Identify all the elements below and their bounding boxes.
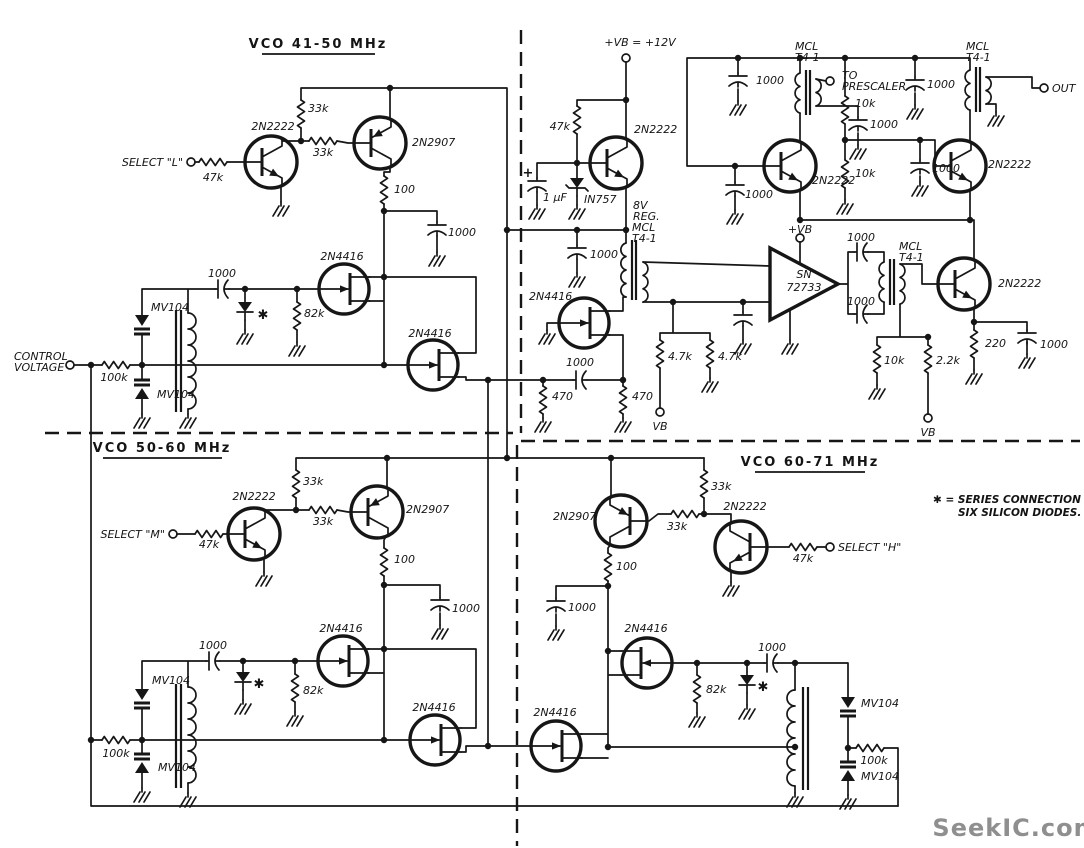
star-vco2: ✱ (254, 677, 265, 692)
q-2n4416-a-vco1: 2N4416 (320, 250, 363, 263)
r-10k-bias: 10k (884, 354, 905, 367)
note-line2: SIX SILICON DIODES. (958, 507, 1081, 519)
q-2n4416-a-vco2: 2N4416 (319, 622, 362, 635)
star-vco1: ✱ (258, 308, 269, 323)
r-100k-vco1: 100k (100, 371, 128, 384)
r-33k-a-vco1: 33k (308, 102, 329, 115)
q-2n2907-vco3: 2N2907 (553, 510, 596, 523)
q-2n4416-b-vco3: 2N4416 (533, 706, 576, 719)
opamp-line1: SN (796, 268, 811, 281)
to-prescaler-line2: PRESCALER (842, 80, 906, 93)
r-4p7k-a: 4.7k (668, 350, 692, 363)
t4-out2-line2: T4-1 (899, 251, 924, 264)
c-1000-b-vco1: 1000 (208, 267, 236, 280)
c-1000-a-vco2: 1000 (452, 602, 480, 615)
q-2n4416-b-vco2: 2N4416 (412, 701, 455, 714)
q-2n2907-vco1: 2N2907 (412, 136, 455, 149)
q-2n2222-vco3: 2N2222 (723, 500, 766, 513)
c-1uf-label: 1 μF (543, 191, 567, 204)
r-10k-a: 10k (855, 97, 876, 110)
c-1000-fb-top: 1000 (847, 231, 875, 244)
opamp-line2: 72733 (787, 281, 822, 294)
d-1n757: IN757 (584, 193, 616, 206)
c-1000-couple: 1000 (566, 356, 594, 369)
q-2n2222-vco1: 2N2222 (251, 120, 294, 133)
vco2-title: VCO 50-60 MHz (93, 441, 232, 456)
r-33k-b-vco3: 33k (667, 520, 688, 533)
r-470-b: 470 (632, 390, 653, 403)
r-82k-vco1: 82k (304, 307, 325, 320)
r-82k-vco2: 82k (303, 684, 324, 697)
q-2n2222-buf1: 2N2222 (812, 174, 855, 187)
select-h-label: SELECT "H" (838, 541, 901, 554)
q-2n2222-buf2: 2N2222 (988, 158, 1031, 171)
d-mv104-a-vco2: MV104 (152, 674, 190, 687)
r-100k-vco2: 100k (102, 747, 130, 760)
watermark: SeekIC.com (932, 814, 1084, 842)
c-1000-b-vco3: 1000 (758, 641, 786, 654)
r-10k-b: 10k (855, 167, 876, 180)
c-1000-out: 1000 (1040, 338, 1068, 351)
d-mv104-a-vco3: MV104 (861, 697, 899, 710)
r-33k-b-vco2: 33k (313, 515, 334, 528)
r-100-vco3: 100 (616, 560, 637, 573)
supply-label: +VB = +12V (604, 36, 677, 49)
r-33k-a-vco2: 33k (303, 475, 324, 488)
r-47k-vco1: 47k (203, 171, 224, 184)
c-1000-rail: 1000 (756, 74, 784, 87)
r-220: 220 (985, 337, 1006, 350)
r-82k-vco3: 82k (706, 683, 727, 696)
star-vco3: ✱ (758, 680, 769, 695)
q-2n4416-b-vco1: 2N4416 (408, 327, 451, 340)
q-2n2222-reg: 2N2222 (634, 123, 677, 136)
c-1000-a-vco3: 1000 (568, 601, 596, 614)
r-47k-vco3: 47k (793, 552, 814, 565)
control-voltage-line2: VOLTAGE (14, 361, 64, 374)
c-1000-reg: 1000 (590, 248, 618, 261)
c-1000-presc: 1000 (870, 118, 898, 131)
r-47k-reg: 47k (550, 120, 571, 133)
r-100k-vco3: 100k (860, 754, 888, 767)
select-m-label: SELECT "M" (100, 528, 165, 541)
vb-label-2: VB (920, 426, 935, 439)
c-1000-a-vco1: 1000 (448, 226, 476, 239)
r-33k-b-vco1: 33k (313, 146, 334, 159)
q-2n4416-a-vco3: 2N4416 (624, 622, 667, 635)
d-mv104-b-vco2: MV104 (158, 761, 196, 774)
vco1-title: VCO 41-50 MHz (249, 37, 388, 52)
vb-label-1: VB (652, 420, 667, 433)
vco3-title: VCO 60-71 MHz (741, 455, 880, 470)
select-l-label: SELECT "L" (122, 156, 183, 169)
r-47k-vco2: 47k (199, 538, 220, 551)
c-1000-buf2: 1000 (932, 162, 960, 175)
vco-schematic: VCO 41-50 MHzVCO 50-60 MHzVCO 60-71 MHz✱… (0, 0, 1084, 848)
q-2n2222-vco2: 2N2222 (232, 490, 275, 503)
t4-out-line2: T4-1 (966, 51, 991, 64)
r-2p2k: 2.2k (936, 354, 960, 367)
r-100-vco2: 100 (394, 553, 415, 566)
schematic-page: VCO 41-50 MHzVCO 50-60 MHzVCO 60-71 MHz✱… (0, 0, 1084, 848)
d-mv104-a-vco1: MV104 (151, 301, 189, 314)
c-1000-top: 1000 (927, 78, 955, 91)
r-4p7k-b: 4.7k (718, 350, 742, 363)
d-mv104-b-vco3: MV104 (861, 770, 899, 783)
background (0, 0, 1084, 848)
out-label: OUT (1052, 82, 1077, 95)
c-1000-buf1: 1000 (745, 188, 773, 201)
r-470-a: 470 (552, 390, 573, 403)
plus-1uf: + (523, 166, 534, 181)
q-2n2222-out: 2N2222 (998, 277, 1041, 290)
t4-mid-line2: T4-1 (632, 232, 657, 245)
q-2n2907-vco2: 2N2907 (406, 503, 449, 516)
r-100-vco1: 100 (394, 183, 415, 196)
r-33k-a-vco3: 33k (711, 480, 732, 493)
opamp-vb-label: +VB (788, 223, 812, 236)
note-line1: ✱ = SERIES CONNECTION OF (933, 494, 1084, 506)
q-2n4416-buffer: 2N4416 (529, 290, 572, 303)
c-1000-fb-bot: 1000 (847, 295, 875, 308)
c-1000-b-vco2: 1000 (199, 639, 227, 652)
t4-presc-line2: T4-1 (795, 51, 820, 64)
d-mv104-b-vco1: MV104 (157, 388, 195, 401)
